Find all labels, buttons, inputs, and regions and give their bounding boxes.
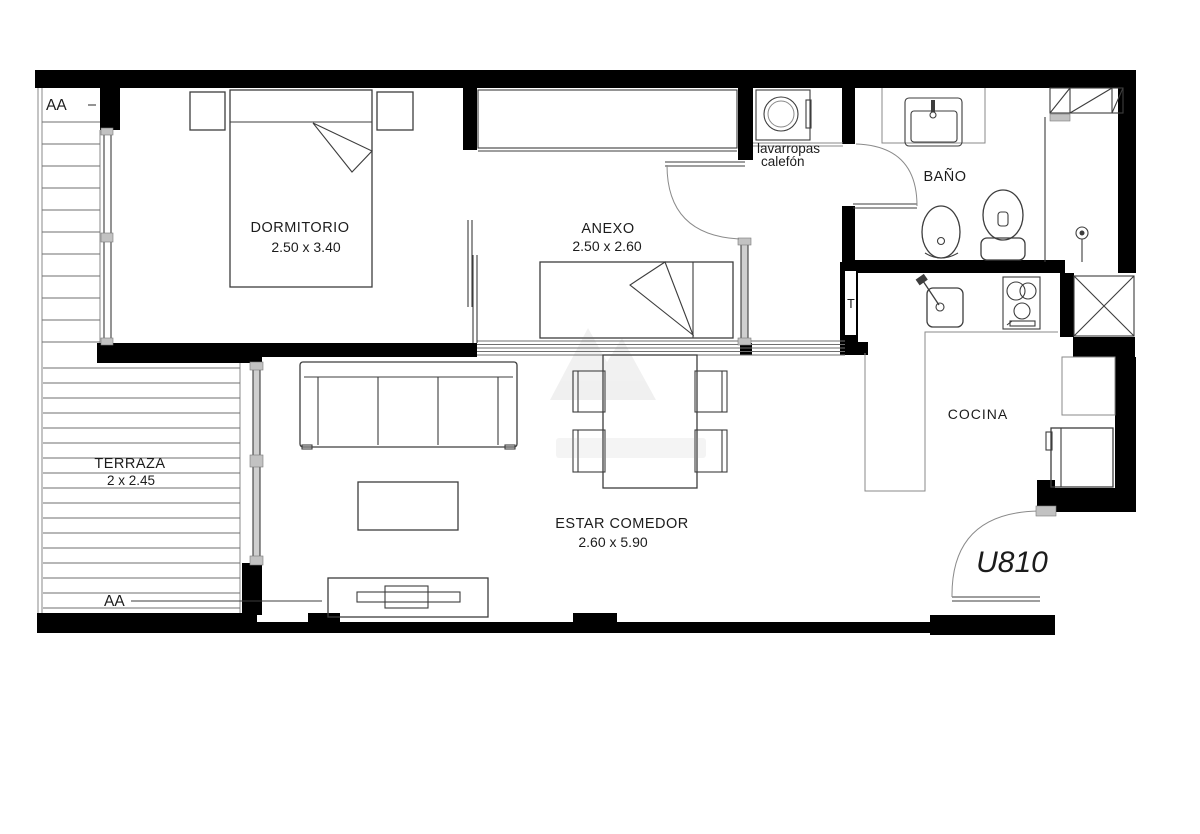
wall-right-upper — [1118, 70, 1136, 273]
room-label-estar: ESTAR COMEDOR — [555, 516, 689, 532]
washing-machine — [753, 90, 843, 146]
wall-entry-bottom — [930, 615, 1055, 635]
bidet — [922, 206, 960, 258]
room-label-dormitorio: DORMITORIO — [251, 220, 350, 236]
anexo-sliding-window — [738, 238, 751, 345]
wall-bathdoor-lower-column — [842, 206, 855, 262]
room-label-bano: BAÑO — [923, 168, 966, 185]
wall-top — [35, 70, 1135, 88]
wall-bath-bottom — [855, 260, 1065, 273]
wall-terrace-se-column — [242, 563, 262, 615]
wall-shaft-left-column — [1060, 273, 1074, 337]
wall-dorm-anexo-stub — [463, 88, 477, 150]
wall-kitchen-right — [1115, 357, 1136, 500]
floor-plan-canvas: AA DORMITORIO 2.50 x 3.40 ANEXO 2.50 x 2… — [0, 0, 1200, 834]
label-calefon: calefón — [761, 154, 805, 169]
coffee-table — [358, 482, 458, 530]
dorm-anexo-partition — [468, 220, 477, 343]
unit-number: U810 — [976, 546, 1048, 579]
tv-unit — [328, 578, 488, 617]
stove — [1003, 277, 1040, 329]
room-dims-dormitorio: 2.50 x 3.40 — [271, 239, 340, 255]
shower — [1045, 114, 1088, 262]
wall-washer-bath-column — [842, 88, 855, 144]
fridge — [1046, 428, 1113, 487]
nightstand-right — [377, 92, 413, 130]
bath-door — [853, 144, 917, 208]
room-dims-estar: 2.60 x 5.90 — [578, 534, 647, 550]
wall-entry-jamb — [1037, 480, 1055, 510]
toilet — [981, 190, 1025, 260]
wall-bottom-estar — [257, 622, 953, 633]
dorm-window — [101, 128, 113, 345]
room-label-anexo: ANEXO — [581, 221, 634, 237]
sofa — [300, 362, 517, 449]
kitchen-sink — [916, 274, 963, 327]
duct-hatch — [1050, 88, 1123, 113]
beam-band — [477, 341, 845, 355]
wall-terrace-top — [97, 343, 262, 363]
room-dims-terraza: 2 x 2.45 — [107, 473, 155, 488]
terrace-deck — [43, 363, 240, 613]
anexo-door — [665, 162, 745, 239]
wall-shaft-bottom — [1073, 337, 1135, 357]
room-label-terraza: TERRAZA — [94, 456, 165, 472]
shower-head-icon — [1080, 231, 1085, 236]
room-dims-anexo: 2.50 x 2.60 — [572, 238, 641, 254]
bath-vanity — [882, 88, 985, 146]
wall-dorm-left-column — [100, 88, 120, 130]
shaft-x — [1074, 276, 1134, 336]
anexo-closet — [478, 90, 737, 151]
faucet-icon — [931, 100, 935, 112]
wall-closet-right-column — [738, 88, 753, 160]
dorm-bed — [230, 90, 372, 287]
terrace-sliding-door — [250, 362, 263, 565]
wall-bottom-stub-b — [573, 613, 617, 622]
label-duct-t: T — [847, 297, 855, 311]
louver-strip — [38, 88, 100, 613]
nightstand-left — [190, 92, 225, 130]
section-label-top: AA — [46, 97, 67, 114]
wall-bottom-terrace — [37, 613, 257, 633]
anexo-bed — [540, 262, 733, 338]
room-label-cocina: COCINA — [948, 406, 1008, 422]
faucet-handle-icon — [916, 274, 928, 285]
section-label-bottom: AA — [104, 593, 125, 610]
